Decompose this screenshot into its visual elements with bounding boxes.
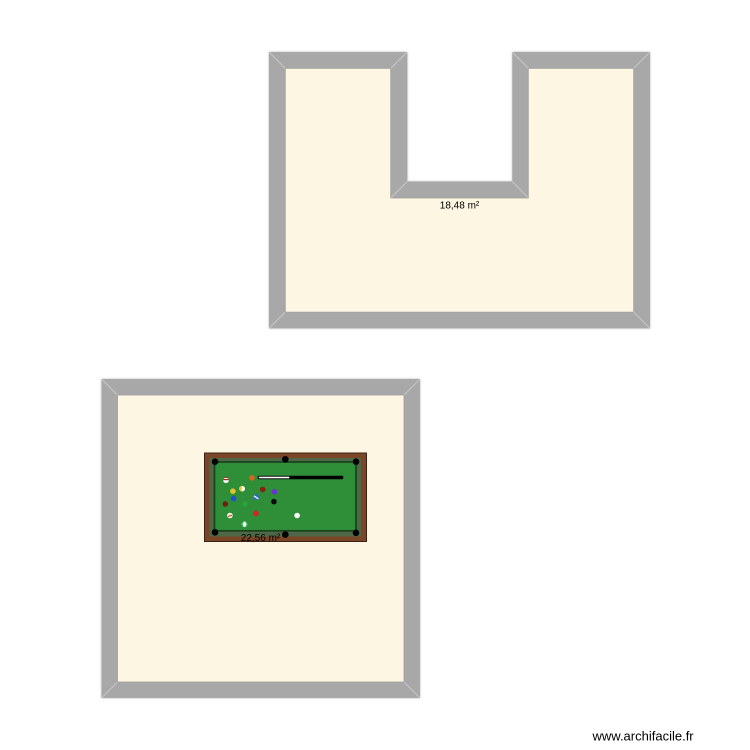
svg-text:www.archifacile.fr: www.archifacile.fr — [592, 729, 695, 744]
svg-text:18,48 m²: 18,48 m² — [440, 200, 480, 211]
svg-text:22,56 m²: 22,56 m² — [241, 533, 281, 544]
